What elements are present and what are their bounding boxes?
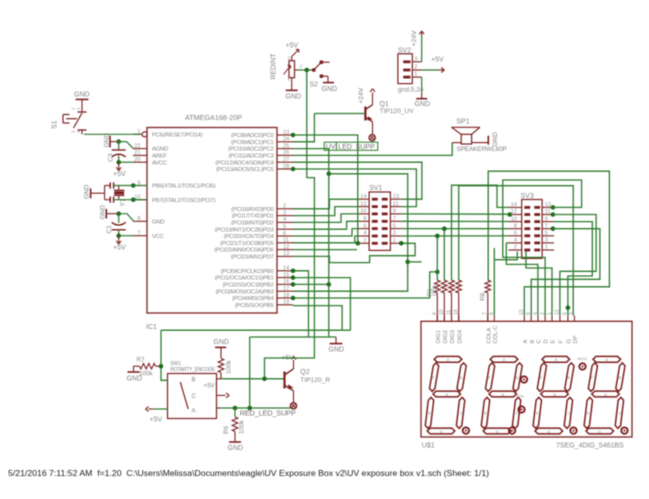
svg-text:TIP120_UV: TIP120_UV [380,108,415,115]
svg-text:2: 2 [414,65,417,71]
svg-text:SV3: SV3 [521,193,534,200]
svg-text:GND: GND [84,184,91,199]
svg-text:2: 2 [363,238,366,244]
svg-text:12: 12 [360,201,366,207]
svg-text:(PCI4/MISO)PB4: (PCI4/MISO)PB4 [232,296,274,302]
svg-text:A: A [503,358,506,362]
svg-text:SP1: SP1 [456,119,469,126]
svg-text:14: 14 [283,266,289,272]
svg-text:G: G [553,393,556,397]
svg-text:25: 25 [283,143,289,149]
svg-text:9: 9 [393,209,396,215]
svg-text:DIG4: DIG4 [457,329,463,343]
svg-text:(PCI2/SS/OC1B)PB2: (PCI2/SS/OC1B)PB2 [222,283,273,289]
svg-text:8: 8 [514,223,517,229]
svg-text:B: B [568,376,571,380]
svg-text:A: A [447,358,450,362]
svg-text:B: B [530,340,536,344]
svg-text:GND: GND [329,346,345,353]
svg-text:13: 13 [283,251,289,257]
svg-text:C1: C1 [106,225,113,234]
svg-text:(PCI23/AIN1)PD7: (PCI23/AIN1)PD7 [231,255,274,261]
svg-text:12: 12 [283,244,289,250]
svg-text:9: 9 [545,216,548,222]
svg-text:(PCI5/SCK)PB5: (PCI5/SCK)PB5 [235,303,275,309]
svg-text:100k: 100k [239,419,246,434]
svg-text:(PCI21/T1/OC0B)PD5: (PCI21/T1/OC0B)PD5 [220,241,274,247]
svg-text:100k: 100k [226,359,233,374]
svg-text:7SEG_4DIG_5461BS: 7SEG_4DIG_5461BS [556,442,624,449]
svg-text:20: 20 [134,157,140,163]
svg-text:15: 15 [283,272,289,278]
svg-text:IC1: IC1 [146,324,157,331]
svg-text:(PCI18/INT0)PD2: (PCI18/INT0)PD2 [231,221,273,227]
svg-text:AREF: AREF [152,154,167,160]
svg-text:7: 7 [393,216,396,222]
svg-text:11: 11 [446,310,452,315]
svg-text:GND: GND [214,339,230,346]
svg-text:3: 3 [545,238,548,244]
svg-text:3: 3 [393,231,396,237]
svg-text:5: 5 [393,223,396,229]
svg-text:A/CG: A/CG [578,357,587,361]
svg-text:E: E [536,412,539,416]
svg-text:LED_SUPP: LED_SUPP [338,144,375,151]
svg-text:100k: 100k [139,371,154,378]
svg-text:RED_LED_SUPP: RED_LED_SUPP [240,409,296,418]
svg-text:DIG2: DIG2 [443,330,449,344]
svg-text:C: C [537,339,543,343]
svg-text:5: 5 [283,224,286,230]
svg-text:COL: COL [517,394,525,398]
svg-text:C: C [568,412,571,416]
svg-text:E: E [484,412,487,416]
svg-text:3: 3 [569,312,575,315]
svg-text:DIG1: DIG1 [436,330,442,344]
svg-text:REDINT: REDINT [271,53,278,80]
svg-text:(PCI22/AIN0/OC0A)PD6: (PCI22/AIN0/OC0A)PD6 [214,248,274,254]
svg-text:E: E [551,340,557,344]
svg-text:8: 8 [363,216,366,222]
svg-text:SPEAKERWL60P: SPEAKERWL60P [456,146,507,153]
svg-text:10: 10 [360,209,366,215]
svg-text:GND: GND [152,219,164,225]
svg-text:16: 16 [283,279,289,285]
svg-text:+5V: +5V [204,383,216,390]
svg-text:E: E [428,412,431,416]
svg-text:4: 4 [363,231,366,237]
svg-text:7: 7 [545,223,548,229]
svg-text:2: 2 [514,245,517,251]
svg-text:5/21/2016 7:11:52 AM f=1.20: 5/21/2016 7:11:52 AM f=1.20 C:\Users\Mel… [8,468,489,478]
svg-text:2: 2 [283,204,286,210]
svg-text:+5V: +5V [150,417,163,424]
svg-text:R8: R8 [479,292,486,301]
svg-text:8: 8 [137,216,140,222]
svg-text:13: 13 [393,194,399,200]
svg-text:B: B [192,377,196,384]
svg-text:18: 18 [283,293,289,299]
svg-text:1: 1 [414,72,417,78]
svg-text:(PCI9/ADC1)PC1: (PCI9/ADC1)PC1 [231,140,273,146]
svg-text:10: 10 [511,216,517,222]
svg-text:S1: S1 [52,120,59,129]
svg-text:(PCI10/ADC2)PC2: (PCI10/ADC2)PC2 [228,147,273,153]
svg-text:COL-C: COL-C [493,325,499,343]
svg-text:ROTARTY_ENCODE: ROTARTY_ENCODE [170,367,216,373]
svg-text:(PCI20/XCK/T0)PD4: (PCI20/XCK/T0)PD4 [224,234,275,240]
svg-text:(PCI13/ADC5/SCL)PC5: (PCI13/ADC5/SCL)PC5 [216,167,274,173]
svg-text:21: 21 [134,150,140,156]
svg-text:7: 7 [483,312,489,315]
svg-text:100k: 100k [432,285,438,297]
svg-text:UV: UV [326,144,336,151]
svg-text:D: D [440,430,443,434]
svg-text:DP: DP [573,335,579,343]
svg-text:(PCI8/ADC0)PC0: (PCI8/ADC0)PC0 [231,133,274,139]
svg-text:SV1: SV1 [369,185,382,192]
svg-text:GND: GND [228,445,244,452]
svg-text:D: D [544,339,550,343]
svg-text:G: G [501,393,504,397]
svg-text:C: C [619,412,622,416]
svg-text:G: G [604,393,607,397]
svg-text:+5V: +5V [113,171,126,178]
svg-text:10: 10 [439,309,445,315]
svg-text:26: 26 [283,150,289,156]
svg-text:+24V: +24V [411,30,418,47]
svg-text:G: G [445,393,448,397]
svg-text:GND: GND [415,101,431,108]
svg-text:Q2: Q2 [300,369,309,376]
svg-text:PC6(/RESET/PCI14): PC6(/RESET/PCI14) [152,132,203,138]
svg-text:14: 14 [511,202,517,208]
svg-text:GND: GND [322,86,338,93]
svg-text:19: 19 [283,300,289,306]
svg-text:11: 11 [393,201,399,207]
svg-text:TIP120_R: TIP120_R [300,377,330,384]
svg-text:A: A [606,358,609,362]
svg-text:(PCI17/TXD)PD1: (PCI17/TXD)PD1 [232,214,274,220]
svg-text:(PCI12/ADC4/SDA)PC4: (PCI12/ADC4/SDA)PC4 [215,160,274,166]
svg-text:GND: GND [492,132,499,147]
svg-text:A: A [555,358,558,362]
svg-text:(PCI16/RXD)PD0: (PCI16/RXD)PD0 [231,207,274,213]
svg-text:G: G [567,339,573,344]
svg-text:3: 3 [283,210,286,216]
svg-text:C3: C3 [108,153,115,162]
svg-text:14: 14 [454,309,460,315]
svg-text:gnd,5,24: gnd,5,24 [398,87,424,94]
svg-text:27: 27 [283,157,289,163]
svg-text:1: 1 [545,245,548,251]
svg-text:+5V: +5V [286,43,299,50]
svg-text:22: 22 [134,143,140,149]
svg-text:+24V: +24V [358,87,365,104]
svg-text:F: F [559,340,565,344]
svg-text:B: B [516,376,519,380]
svg-text:3: 3 [414,56,417,62]
svg-text:6: 6 [363,223,366,229]
svg-text:11: 11 [283,238,289,244]
svg-text:11: 11 [545,209,551,215]
svg-text:6: 6 [432,312,438,315]
svg-text:E: E [587,412,590,416]
svg-text:GND: GND [100,205,107,220]
svg-text:17: 17 [283,286,289,292]
svg-text:GND: GND [74,92,90,99]
svg-text:24: 24 [283,137,289,143]
svg-text:6: 6 [514,231,517,237]
svg-text:COLA: COLA [486,328,492,344]
svg-text:ATMEGA168-20P: ATMEGA168-20P [185,113,242,122]
svg-text:4: 4 [283,217,286,223]
svg-text:U$1: U$1 [422,442,435,449]
svg-text:1: 1 [393,238,396,244]
svg-text:+5V: +5V [113,245,126,252]
svg-text:B: B [460,376,463,380]
svg-text:B: B [619,376,622,380]
svg-text:13: 13 [545,202,551,208]
svg-text:(PCI11/ADC3)PC3: (PCI11/ADC3)PC3 [229,154,275,160]
svg-text:PB6(XTAL1/TOSC1/PCI6): PB6(XTAL1/TOSC1/PCI6) [152,184,216,190]
svg-text:14: 14 [360,194,366,200]
svg-text:A: A [523,340,529,344]
svg-text:R7: R7 [137,357,146,364]
svg-text:D: D [547,430,550,434]
svg-text:VCC: VCC [152,234,165,240]
svg-text:(PCI0/ICP/CLKO)PB0: (PCI0/ICP/CLKO)PB0 [221,269,275,275]
svg-text:(PCI1/OC1A/OC1S)PB1: (PCI1/OC1A/OC1S)PB1 [215,276,274,282]
svg-text:5: 5 [545,231,548,237]
svg-text:6: 6 [283,231,286,237]
svg-text:AVCC: AVCC [152,160,168,166]
svg-text:AGND: AGND [152,147,168,153]
svg-text:GND: GND [286,94,302,101]
svg-text:28: 28 [283,164,289,170]
svg-text:C: C [460,412,463,416]
svg-text:23: 23 [283,130,289,136]
svg-text:(PCI19/INT1/OC2B)PD3: (PCI19/INT1/OC2B)PD3 [215,227,275,233]
svg-text:PB7(XTAL2/TOSC2/PCI7): PB7(XTAL2/TOSC2/PCI7) [152,198,216,204]
svg-text:S2: S2 [310,82,319,89]
svg-text:7: 7 [137,231,140,237]
svg-text:C: C [192,393,197,400]
svg-text:DIG3: DIG3 [450,330,456,344]
svg-text:4: 4 [514,238,517,244]
svg-text:+5V: +5V [431,57,444,64]
svg-text:R6: R6 [223,425,230,434]
svg-text:D: D [496,430,499,434]
svg-text:(PCI3/MOSI/OC2A)PB3: (PCI3/MOSI/OC2A)PB3 [216,289,275,295]
svg-text:D: D [598,430,601,434]
